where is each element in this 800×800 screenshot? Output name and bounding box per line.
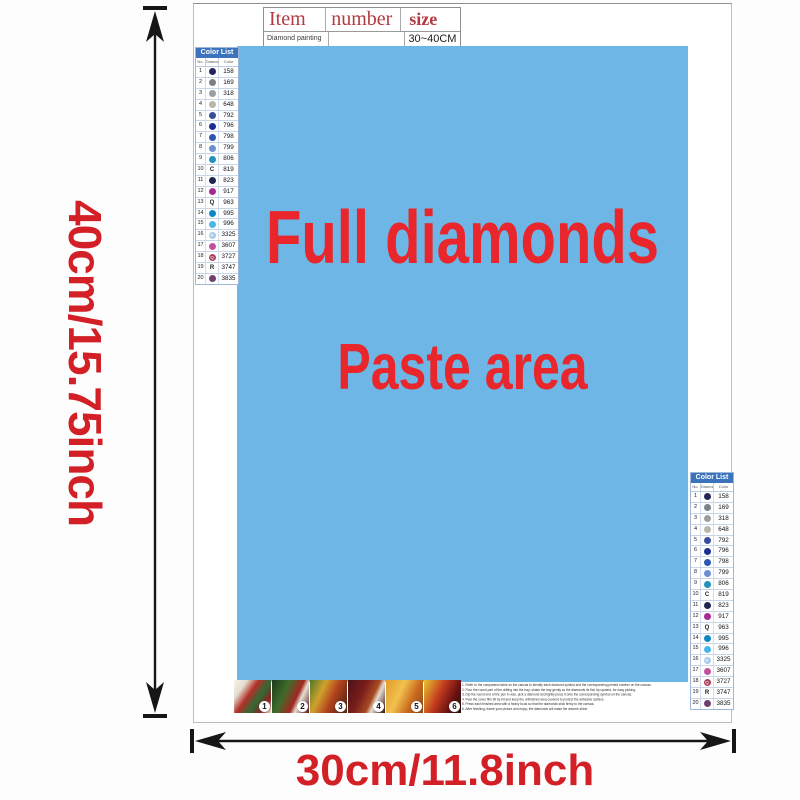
- diamond-color-dot: [209, 68, 216, 75]
- size-header-cell: size: [401, 8, 460, 31]
- diamond-color-dot: [704, 504, 711, 511]
- color-row-code: 3325: [219, 230, 238, 240]
- paste-area-title: Full diamonds: [237, 194, 688, 281]
- color-list-row: 15996: [691, 644, 733, 655]
- color-row-code: 806: [219, 154, 238, 164]
- color-list-rows: 11582169331846485792679677988799980610C8…: [196, 67, 238, 284]
- color-list-row: 18Q3727: [196, 252, 238, 263]
- diamond-color-dot: [704, 635, 711, 642]
- color-list-row: 3318: [691, 514, 733, 525]
- color-row-diamond-symbol: [206, 274, 219, 284]
- color-row-number: 7: [196, 132, 206, 142]
- color-row-number: 17: [691, 666, 701, 676]
- color-row-diamond-symbol: C: [206, 165, 219, 175]
- color-row-number: 14: [196, 209, 206, 219]
- color-row-diamond-symbol: [206, 78, 219, 88]
- color-list-column-headers: No. Diamond Color: [691, 483, 733, 492]
- color-row-number: 17: [196, 241, 206, 251]
- diamond-color-dot: [704, 526, 711, 533]
- step-number-badge: 1: [259, 701, 270, 712]
- color-row-code: 806: [714, 579, 733, 589]
- color-row-diamond-symbol: [701, 557, 714, 567]
- color-row-diamond-symbol: [701, 612, 714, 622]
- color-row-diamond-symbol: [206, 111, 219, 121]
- color-list-row: 9806: [196, 154, 238, 165]
- diamond-symbol-letter: Q: [705, 625, 710, 631]
- color-list-row: 173607: [196, 241, 238, 252]
- step-photo: 6: [424, 680, 461, 713]
- diamond-color-dot: R: [704, 657, 711, 664]
- color-row-diamond-symbol: [206, 241, 219, 251]
- diamond-color-dot: [704, 646, 711, 653]
- color-row-code: 792: [714, 536, 733, 546]
- color-row-code: 3747: [219, 263, 238, 273]
- color-list-row: 14995: [196, 209, 238, 220]
- col-no: No.: [196, 58, 206, 66]
- diamond-color-dot: [704, 581, 711, 588]
- color-row-code: 963: [219, 198, 238, 208]
- item-info-table: Item number size Diamond painting 30~40C…: [263, 7, 461, 47]
- diamond-color-dot: [209, 188, 216, 195]
- instructions-text: 1. Refer to the comparison table on the …: [462, 683, 714, 713]
- color-row-number: 14: [691, 634, 701, 644]
- diamond-color-dot: [209, 123, 216, 130]
- color-row-diamond-symbol: [206, 89, 219, 99]
- item-value-cell: Diamond painting: [264, 32, 329, 46]
- diamond-color-dot: [209, 79, 216, 86]
- width-dimension-label: 30cm/11.8inch: [245, 746, 645, 796]
- color-row-code: 823: [219, 176, 238, 186]
- color-row-code: 996: [219, 219, 238, 229]
- color-list-row: 203835: [196, 274, 238, 284]
- color-row-diamond-symbol: [701, 525, 714, 535]
- color-row-number: 9: [691, 579, 701, 589]
- color-row-code: 799: [714, 568, 733, 578]
- color-row-number: 5: [196, 111, 206, 121]
- step-photo: 1: [234, 680, 271, 713]
- diamond-color-dot: [209, 210, 216, 217]
- col-diamond: Diamond: [701, 483, 714, 491]
- color-row-code: 3747: [714, 688, 733, 698]
- color-row-number: 13: [691, 623, 701, 633]
- color-row-number: 1: [691, 492, 701, 502]
- arrow-right-cap: [732, 729, 736, 753]
- color-row-number: 11: [691, 601, 701, 611]
- color-list-row: 10C819: [691, 590, 733, 601]
- color-row-number: 11: [196, 176, 206, 186]
- color-list-rows: 11582169331846485792679677988799980610C8…: [691, 492, 733, 709]
- color-row-number: 10: [691, 590, 701, 600]
- color-row-code: 996: [714, 644, 733, 654]
- color-row-diamond-symbol: [701, 514, 714, 524]
- color-row-number: 20: [196, 274, 206, 284]
- arrow-bottom-cap: [143, 714, 167, 718]
- color-row-diamond-symbol: [206, 121, 219, 131]
- color-list-row: 6796: [691, 546, 733, 557]
- color-list-row: 16R3325: [196, 230, 238, 241]
- color-row-diamond-symbol: Q: [701, 623, 714, 633]
- step-number-badge: 4: [373, 701, 384, 712]
- diamond-color-dot: [209, 112, 216, 119]
- diamond-color-dot: [209, 221, 216, 228]
- color-row-number: 13: [196, 198, 206, 208]
- color-list-row: 14995: [691, 634, 733, 645]
- size-value-cell: 30~40CM: [405, 32, 460, 46]
- color-list-title: Color List: [691, 473, 733, 483]
- color-row-diamond-symbol: [701, 546, 714, 556]
- color-row-code: 963: [714, 623, 733, 633]
- color-row-code: 3835: [219, 274, 238, 284]
- color-row-number: 8: [691, 568, 701, 578]
- color-row-code: 792: [219, 111, 238, 121]
- color-row-code: 819: [219, 165, 238, 175]
- color-list-row: 3318: [196, 89, 238, 100]
- color-row-number: 10: [196, 165, 206, 175]
- color-row-diamond-symbol: [206, 187, 219, 197]
- color-row-number: 12: [691, 612, 701, 622]
- color-list-row: 5792: [691, 536, 733, 547]
- step-number-badge: 6: [449, 701, 460, 712]
- color-row-diamond-symbol: [206, 219, 219, 229]
- item-table-data-row: Diamond painting 30~40CM: [264, 32, 460, 46]
- color-row-code: 798: [714, 557, 733, 567]
- color-row-number: 1: [196, 67, 206, 77]
- color-row-code: 796: [219, 121, 238, 131]
- col-diamond: Diamond: [206, 58, 219, 66]
- color-row-number: 16: [196, 230, 206, 240]
- color-list-row: 11823: [691, 601, 733, 612]
- step-number-badge: 5: [411, 701, 422, 712]
- step-photo: 4: [348, 680, 385, 713]
- paste-area-subtitle: Paste area: [237, 329, 688, 404]
- color-row-code: 169: [714, 503, 733, 513]
- color-row-number: 15: [691, 644, 701, 654]
- color-list-row: 12917: [691, 612, 733, 623]
- color-list-row: 10C819: [196, 165, 238, 176]
- color-row-code: 3325: [714, 655, 733, 665]
- color-row-number: 5: [691, 536, 701, 546]
- color-row-number: 2: [691, 503, 701, 513]
- diamond-color-dot: [209, 243, 216, 250]
- color-list-row: 8799: [196, 143, 238, 154]
- color-list-row: 9806: [691, 579, 733, 590]
- color-row-number: 2: [196, 78, 206, 88]
- diamond-symbol-letter: Q: [210, 200, 215, 206]
- diamond-color-dot: Q: [209, 254, 216, 261]
- diamond-symbol-letter: C: [705, 592, 709, 598]
- color-list-row: 13Q963: [196, 198, 238, 209]
- diamond-color-dot: [209, 156, 216, 163]
- step-photo: 3: [310, 680, 347, 713]
- number-header-cell: number: [326, 8, 401, 31]
- color-row-number: 8: [196, 143, 206, 153]
- color-row-diamond-symbol: [701, 492, 714, 502]
- color-list-row: 15996: [196, 219, 238, 230]
- item-header-cell: Item: [264, 8, 326, 31]
- step-photo: 2: [272, 680, 309, 713]
- step-number-badge: 2: [297, 701, 308, 712]
- color-row-code: 3727: [219, 252, 238, 262]
- color-row-code: 995: [219, 209, 238, 219]
- color-row-code: 318: [714, 514, 733, 524]
- color-list-row: 11823: [196, 176, 238, 187]
- arrow-top-cap: [143, 6, 167, 10]
- color-list-row: 1158: [196, 67, 238, 78]
- color-row-diamond-symbol: [701, 644, 714, 654]
- diamond-symbol-letter: R: [210, 265, 214, 271]
- color-row-diamond-symbol: [701, 536, 714, 546]
- color-row-diamond-symbol: [206, 143, 219, 153]
- color-row-diamond-symbol: [701, 568, 714, 578]
- color-row-number: 19: [196, 263, 206, 273]
- number-value-cell: [329, 32, 405, 46]
- col-color: Color: [714, 483, 733, 491]
- color-row-diamond-symbol: [206, 209, 219, 219]
- color-row-number: 7: [691, 557, 701, 567]
- color-row-code: 3727: [714, 677, 733, 687]
- color-list-row: 2169: [196, 78, 238, 89]
- color-list-row: 7798: [196, 132, 238, 143]
- color-row-code: 648: [219, 100, 238, 110]
- color-row-diamond-symbol: [701, 503, 714, 513]
- step-photo: 5: [386, 680, 423, 713]
- color-row-diamond-symbol: [701, 601, 714, 611]
- diamond-color-dot: [209, 275, 216, 282]
- color-row-code: 3607: [714, 666, 733, 676]
- color-list-row: 12917: [196, 187, 238, 198]
- color-row-diamond-symbol: [701, 666, 714, 676]
- diamond-color-dot: [704, 559, 711, 566]
- color-row-code: 917: [219, 187, 238, 197]
- color-row-number: 4: [691, 525, 701, 535]
- diamond-color-dot: [704, 548, 711, 555]
- color-list-row: 4648: [196, 100, 238, 111]
- color-row-code: 3607: [219, 241, 238, 251]
- height-dimension-label: 40cm/15.75inch: [58, 200, 112, 545]
- color-row-code: 799: [219, 143, 238, 153]
- color-list-left: Color List No. Diamond Color 11582169331…: [195, 47, 239, 285]
- canvas-sheet: Item number size Diamond painting 30~40C…: [193, 3, 732, 723]
- color-list-row: 1158: [691, 492, 733, 503]
- arrow-left-cap: [190, 729, 194, 753]
- color-list-row: 6796: [196, 121, 238, 132]
- color-list-row: 4648: [691, 525, 733, 536]
- paste-area: Full diamonds Paste area: [237, 46, 688, 682]
- color-row-number: 4: [196, 100, 206, 110]
- color-row-code: 158: [714, 492, 733, 502]
- color-row-diamond-symbol: [206, 67, 219, 77]
- color-list-title: Color List: [196, 48, 238, 58]
- diamond-color-dot: [209, 101, 216, 108]
- color-row-number: 15: [196, 219, 206, 229]
- color-row-number: 12: [196, 187, 206, 197]
- color-row-diamond-symbol: Q: [206, 198, 219, 208]
- color-list-row: 2169: [691, 503, 733, 514]
- color-row-code: 917: [714, 612, 733, 622]
- color-list-row: 8799: [691, 568, 733, 579]
- color-row-number: 18: [196, 252, 206, 262]
- color-list-row: 5792: [196, 111, 238, 122]
- step-photo-strip: 123456: [234, 680, 461, 713]
- col-no: No.: [691, 483, 701, 491]
- diamond-color-dot: R: [209, 232, 216, 239]
- diamond-color-dot: [209, 177, 216, 184]
- color-row-code: 796: [714, 546, 733, 556]
- color-list-row: 173607: [691, 666, 733, 677]
- color-row-code: 819: [714, 590, 733, 600]
- diamond-color-dot: [704, 493, 711, 500]
- diamond-color-dot: [704, 613, 711, 620]
- color-row-diamond-symbol: R: [206, 263, 219, 273]
- col-color: Color: [219, 58, 238, 66]
- color-row-code: 3835: [714, 699, 733, 709]
- diamond-color-dot: [209, 145, 216, 152]
- item-table-header-row: Item number size: [264, 8, 460, 32]
- diamond-color-dot: [209, 134, 216, 141]
- color-row-diamond-symbol: [701, 634, 714, 644]
- color-list-row: 7798: [691, 557, 733, 568]
- color-row-diamond-symbol: [206, 100, 219, 110]
- color-row-diamond-symbol: [701, 579, 714, 589]
- color-list-right: Color List No. Diamond Color 11582169331…: [690, 472, 734, 710]
- color-row-diamond-symbol: [206, 154, 219, 164]
- color-row-code: 798: [219, 132, 238, 142]
- color-row-number: 16: [691, 655, 701, 665]
- color-row-diamond-symbol: R: [701, 655, 714, 665]
- height-dimension-arrow: [140, 6, 170, 718]
- diamond-color-dot: [704, 570, 711, 577]
- diamond-color-dot: [704, 602, 711, 609]
- instruction-line: 6. After finishing, frame your picture a…: [462, 707, 714, 712]
- color-list-row: 16R3325: [691, 655, 733, 666]
- color-row-diamond-symbol: C: [701, 590, 714, 600]
- color-row-number: 6: [196, 121, 206, 131]
- diamond-symbol-letter: C: [210, 167, 214, 173]
- color-row-number: 3: [196, 89, 206, 99]
- color-row-number: 6: [691, 546, 701, 556]
- color-list-row: 13Q963: [691, 623, 733, 634]
- color-row-number: 3: [691, 514, 701, 524]
- diamond-color-dot: [704, 515, 711, 522]
- color-row-number: 9: [196, 154, 206, 164]
- color-row-diamond-symbol: [206, 132, 219, 142]
- color-row-code: 823: [714, 601, 733, 611]
- diamond-color-dot: [209, 90, 216, 97]
- color-row-code: 648: [714, 525, 733, 535]
- color-row-code: 158: [219, 67, 238, 77]
- color-list-column-headers: No. Diamond Color: [196, 58, 238, 67]
- color-row-diamond-symbol: [206, 176, 219, 186]
- diamond-color-dot: [704, 668, 711, 675]
- diamond-color-dot: [704, 537, 711, 544]
- color-list-row: 19R3747: [196, 263, 238, 274]
- color-row-code: 995: [714, 634, 733, 644]
- color-row-diamond-symbol: Q: [206, 252, 219, 262]
- color-row-code: 169: [219, 78, 238, 88]
- step-number-badge: 3: [335, 701, 346, 712]
- color-row-code: 318: [219, 89, 238, 99]
- color-row-diamond-symbol: R: [206, 230, 219, 240]
